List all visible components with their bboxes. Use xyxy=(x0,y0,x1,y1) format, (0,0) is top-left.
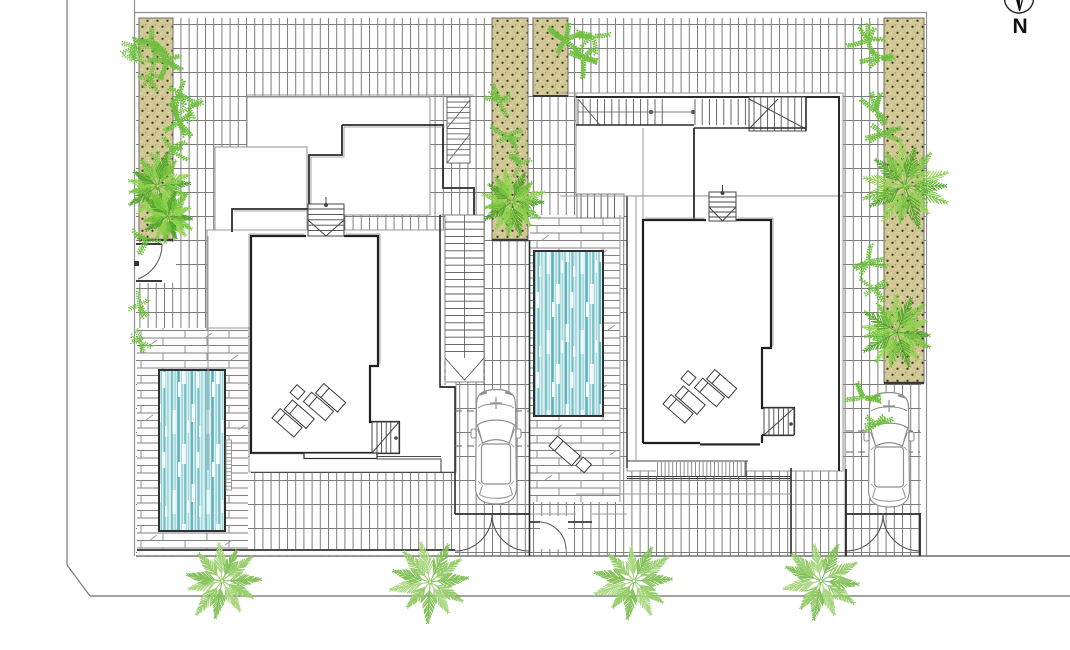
svg-text:N: N xyxy=(1013,15,1028,38)
